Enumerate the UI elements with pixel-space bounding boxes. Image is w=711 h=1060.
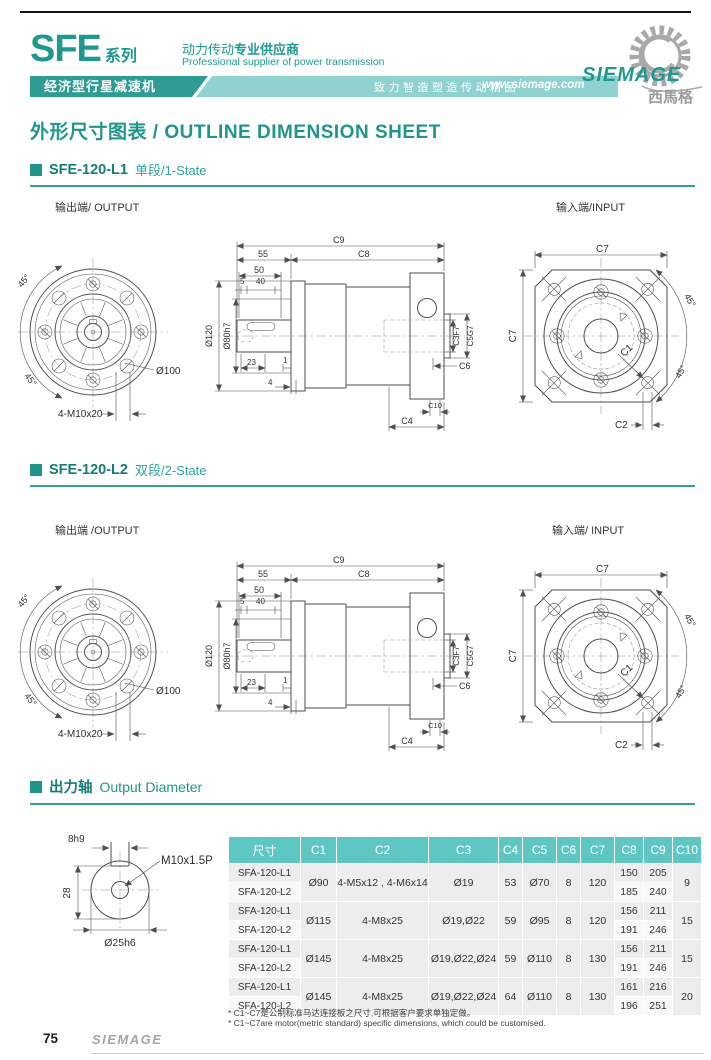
dim-label-23: 23 xyxy=(247,678,256,687)
dim-label-55: 55 xyxy=(258,249,268,259)
drawing-l1: 45° 45° Ø100 4-M10x20 C9 55 xyxy=(0,224,711,457)
bottom-rule xyxy=(92,1053,704,1054)
dim-label-c9: C9 xyxy=(333,555,345,565)
section-heading-l1: SFE-120-L1 单段/1-State xyxy=(30,160,695,187)
dim-label-d80: Ø80h7 xyxy=(222,322,232,349)
dim-label-45: 45° xyxy=(22,691,39,708)
table-row: SFA-120-L1 Ø115 4-M8x25 Ø19,Ø22 59 Ø95 8… xyxy=(229,902,702,921)
dim-label-c3: C3F7 xyxy=(452,326,461,346)
dim-label-thread: M10x1.5P xyxy=(161,855,213,867)
dim-label-c6: C6 xyxy=(459,681,471,691)
series-text: SFE xyxy=(30,28,101,70)
dim-label-m10: 4-M10x20 xyxy=(58,409,103,420)
outline-drawing: 45° 45° Ø100 4-M10x20 C9 55 xyxy=(0,224,711,452)
page-number: 75 xyxy=(43,1031,58,1046)
col-header: C7 xyxy=(581,837,615,864)
dim-label-c7: C7 xyxy=(508,329,519,342)
input-flange-view: C7 C7 45° 45° C1 C2 xyxy=(508,244,698,431)
dim-label-c2: C2 xyxy=(615,420,628,431)
col-header: C6 xyxy=(557,837,581,864)
section-name: SFE-120-L2 xyxy=(49,462,128,478)
section-state: 双段/2-State xyxy=(135,460,207,479)
dim-label-c7: C7 xyxy=(596,244,609,255)
dim-label-50: 50 xyxy=(254,265,264,275)
input-label: 输入端/INPUT xyxy=(556,199,625,215)
dim-label-5: 5 xyxy=(240,597,245,606)
col-header: C4 xyxy=(499,837,523,864)
table-header-row: 尺寸 C1 C2 C3 C4 C5 C6 C7 C8 C9 C10 xyxy=(229,837,702,864)
banner-left: 经济型行星减速机 xyxy=(30,76,208,97)
dim-label-c5: C5G7 xyxy=(466,325,475,346)
footnote-en: * C1~C7are motor(metric standard) specif… xyxy=(228,1018,546,1028)
dim-label-45: 45° xyxy=(16,592,33,609)
dim-label-d100: Ø100 xyxy=(156,686,181,697)
dim-label-1: 1 xyxy=(283,676,288,685)
dim-label-40: 40 xyxy=(256,597,265,606)
dim-label-dia: Ø25h6 xyxy=(104,937,136,949)
col-header: 尺寸 xyxy=(229,837,301,864)
output-label: 输出端 /OUTPUT xyxy=(55,522,139,538)
output-label: 输出端/ OUTPUT xyxy=(55,199,139,215)
dim-label-c4: C4 xyxy=(401,416,413,426)
dim-label-5: 5 xyxy=(240,277,245,286)
logo-wordmark: SIEMAGE xyxy=(582,64,681,86)
section-state: 单段/1-State xyxy=(135,160,207,179)
section-heading-l2: SFE-120-L2 双段/2-State xyxy=(30,460,695,487)
dim-label-key: 8h9 xyxy=(68,834,85,845)
dim-label-c10: C10 xyxy=(428,401,442,410)
dim-label-23: 23 xyxy=(247,358,256,367)
table-row: SFA-120-L1 Ø145 4-M8x25 Ø19,Ø22,Ø24 64 Ø… xyxy=(229,978,702,997)
output-flange-view: 45° 45° Ø100 4-M10x20 xyxy=(16,257,181,421)
dim-label-d120: Ø120 xyxy=(204,645,214,667)
page-title: 外形尺寸图表 / OUTLINE DIMENSION SHEET xyxy=(30,117,441,144)
dim-label-40: 40 xyxy=(256,277,265,286)
company-logo: SIEMAGE 西馬格 xyxy=(580,24,710,110)
dim-label-45: 45° xyxy=(682,612,698,629)
dim-label-c2: C2 xyxy=(615,740,628,751)
dim-label-4: 4 xyxy=(268,698,273,707)
dim-label-d100: Ø100 xyxy=(156,366,181,377)
dim-label-c10: C10 xyxy=(428,721,442,730)
table-row: SFA-120-L1 Ø90 4-M5x12 , 4-M6x14 Ø19 53 … xyxy=(229,864,702,883)
section-bullet xyxy=(30,164,42,176)
col-header: C5 xyxy=(523,837,557,864)
section-name-en: Output Diameter xyxy=(100,779,203,795)
dim-label-1: 1 xyxy=(283,356,288,365)
output-flange-view: 45° 45° Ø100 4-M10x20 xyxy=(16,577,181,741)
input-flange-view: C7 C7 45° 45° C1 C2 xyxy=(508,564,698,751)
dim-label-4: 4 xyxy=(268,378,273,387)
dim-label-c5: C5G7 xyxy=(466,645,475,666)
dim-label-m10: 4-M10x20 xyxy=(58,729,103,740)
drawing-l2: 45° 45° Ø100 4-M10x20 C9 55 xyxy=(0,544,711,777)
dim-label-45: 45° xyxy=(16,272,33,289)
col-header: C2 xyxy=(337,837,429,864)
website-link[interactable]: www.siemage.com xyxy=(482,79,584,91)
top-rule xyxy=(20,11,691,13)
logo-cn: 西馬格 xyxy=(648,88,694,106)
dim-label-c8: C8 xyxy=(358,249,370,259)
dim-label-c4: C4 xyxy=(401,736,413,746)
dim-label-c3: C3F7 xyxy=(452,646,461,666)
dim-label-28: 28 xyxy=(62,887,73,899)
section-name-cn: 出力轴 xyxy=(49,776,93,797)
series-logo: SFE系列 xyxy=(30,30,137,68)
col-header: C1 xyxy=(301,837,337,864)
footer-brand: SIEMAGE xyxy=(92,1032,162,1047)
dim-label-45: 45° xyxy=(673,683,689,700)
side-view: C9 55 C8 50 5 40 Ø120 Ø80h7 23 1 xyxy=(204,555,475,751)
tagline-en: Professional supplier of power transmiss… xyxy=(182,56,385,68)
dim-label-45: 45° xyxy=(673,363,689,380)
shaft-section-drawing: 8h9 28 M10x1.5P Ø25h6 xyxy=(20,800,245,965)
dim-label-55: 55 xyxy=(258,569,268,579)
dim-label-45: 45° xyxy=(682,292,698,309)
dim-label-c9: C9 xyxy=(333,235,345,245)
dim-label-c7: C7 xyxy=(596,564,609,575)
section-name: SFE-120-L1 xyxy=(49,162,128,178)
catalog-page: SFE系列 动力传动专业供应商 Professional supplier of… xyxy=(0,0,711,1060)
dim-label-50: 50 xyxy=(254,585,264,595)
side-view: C9 55 C8 50 5 40 Ø120 Ø80h7 23 1 xyxy=(204,235,475,431)
section-bullet xyxy=(30,464,42,476)
dim-label-d80: Ø80h7 xyxy=(222,642,232,669)
input-label: 输入端/ INPUT xyxy=(552,522,624,538)
series-suffix: 系列 xyxy=(105,48,137,65)
dim-label-c6: C6 xyxy=(459,361,471,371)
col-header: C10 xyxy=(673,837,702,864)
dimension-table: 尺寸 C1 C2 C3 C4 C5 C6 C7 C8 C9 C10 SFA-12… xyxy=(228,836,702,1016)
outline-drawing: 45° 45° Ø100 4-M10x20 C9 55 xyxy=(0,544,711,772)
dim-label-c8: C8 xyxy=(358,569,370,579)
col-header: C9 xyxy=(644,837,673,864)
table-row: SFA-120-L1 Ø145 4-M8x25 Ø19,Ø22,Ø24 59 Ø… xyxy=(229,940,702,959)
dim-label-45: 45° xyxy=(22,371,39,388)
dim-label-d120: Ø120 xyxy=(204,325,214,347)
dim-label-c7: C7 xyxy=(508,649,519,662)
col-header: C8 xyxy=(615,837,644,864)
col-header: C3 xyxy=(429,837,499,864)
section-bullet xyxy=(30,781,42,793)
